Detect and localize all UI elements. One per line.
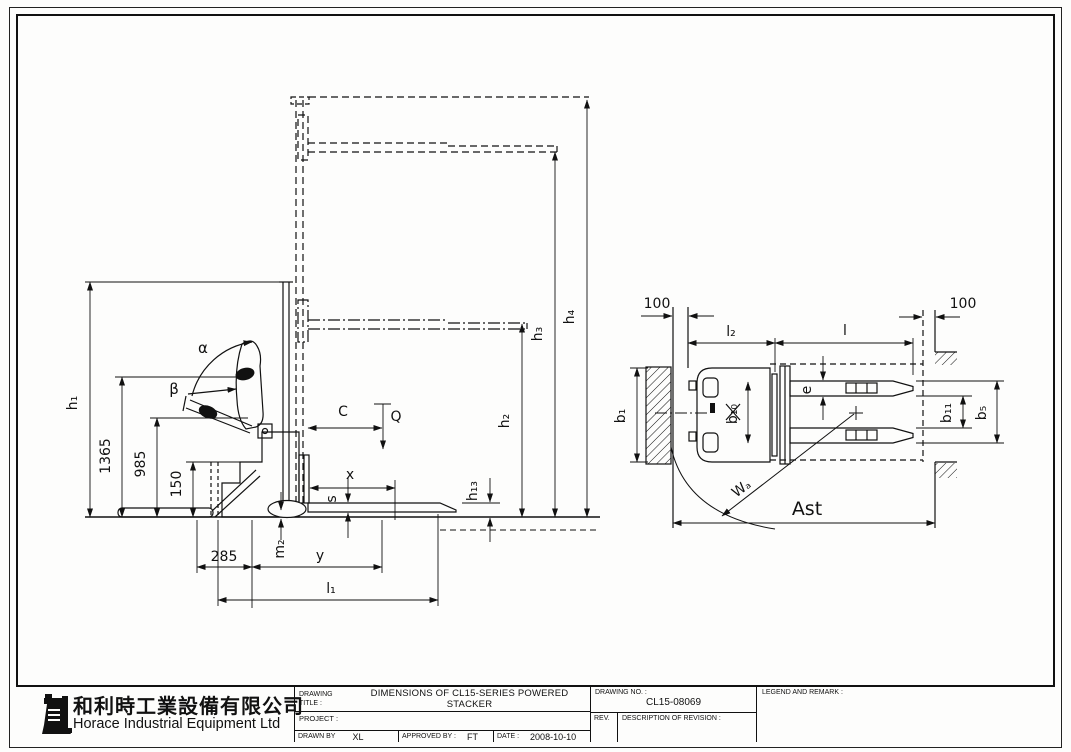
dim-label-alpha: α <box>198 339 208 357</box>
drawing-no-label: DRAWING NO. : <box>595 689 647 696</box>
fork-raised-high <box>298 115 557 160</box>
revision-description-label: DESCRIPTION OF REVISION : <box>618 713 756 742</box>
drawing-title-label-1: DRAWING <box>299 690 349 699</box>
dim-label-h1: h₁ <box>65 396 81 411</box>
engineering-drawing-sheet: h₁ 1365 985 150 α β C Q x s m₂ 285 y l₁ … <box>0 0 1071 752</box>
date-label: DATE : <box>494 733 522 740</box>
fork-lowered <box>299 455 456 512</box>
dim-label-c: C <box>338 404 348 420</box>
drawing-title-value: DIMENSIONS OF CL15-SERIES POWERED STACKE… <box>349 688 590 710</box>
drive-wheel-top <box>703 378 718 397</box>
dim-label-100-right: 100 <box>950 296 977 312</box>
dim-label-y: y <box>316 548 324 564</box>
drawing-title-label-2: TITLE : <box>299 699 349 708</box>
tiller-grip-up <box>235 366 255 381</box>
caster-wheel-top <box>703 433 718 452</box>
approved-by-label: APPROVED BY : <box>399 733 459 740</box>
dim-label-l1: l₁ <box>326 581 336 597</box>
dim-label-b1: b₁ <box>613 409 629 424</box>
turning-radius <box>671 406 863 529</box>
company-logo <box>42 694 72 736</box>
dim-label-b5: b₅ <box>974 406 990 421</box>
dim-label-b11: b₁₁ <box>939 403 955 423</box>
company-block: 和利時工業設備有限公司 Horace Industrial Equipment … <box>16 687 294 742</box>
dim-label-1365: 1365 <box>98 438 114 474</box>
beta-arrow <box>188 389 236 394</box>
dim-label-s: s <box>324 495 340 502</box>
dim-label-b10: b₁₀ <box>725 404 741 424</box>
dim-label-beta: β <box>169 380 179 398</box>
dim-label-ast: Ast <box>792 498 822 520</box>
dim-label-h3: h₃ <box>530 327 546 342</box>
fork-raised-mid <box>298 300 527 342</box>
tiller-upright <box>235 341 272 438</box>
dim-label-l2: l₂ <box>726 324 736 340</box>
company-name-en: Horace Industrial Equipment Ltd <box>73 716 280 732</box>
load-roller-bottom <box>846 430 877 440</box>
dim-label-150: 150 <box>169 471 185 498</box>
approved-by-value: FT <box>467 732 478 742</box>
dim-label-wa: Wₐ <box>729 477 754 501</box>
chassis-body <box>211 432 306 518</box>
project-label: PROJECT : <box>295 711 590 730</box>
technical-drawing: h₁ 1365 985 150 α β C Q x s m₂ 285 y l₁ … <box>0 0 1071 752</box>
rev-label: REV. <box>591 713 618 742</box>
tiller-lowered <box>183 396 252 433</box>
date-value: 2008-10-10 <box>530 732 576 742</box>
dim-label-985: 985 <box>133 451 149 478</box>
title-block-right: DRAWING NO. : CL15-08069 REV. DESCRIPTIO… <box>590 687 756 742</box>
title-block: 和利時工業設備有限公司 Horace Industrial Equipment … <box>16 685 1055 742</box>
side-view: h₁ 1365 985 150 α β C Q x s m₂ 285 y l₁ … <box>65 97 600 608</box>
title-block-middle: DRAWING TITLE : DIMENSIONS OF CL15-SERIE… <box>294 687 590 742</box>
company-name-cn: 和利時工業設備有限公司 <box>73 690 304 719</box>
top-view: 100 100 l₂ l e b₁ b₁₀ b₁₁ b₅ Wₐ Ast <box>613 296 1004 529</box>
load-roller-top <box>846 383 877 393</box>
mast-top <box>772 366 790 464</box>
drive-wheel <box>268 501 306 518</box>
drawing-no-value: CL15-08069 <box>591 697 756 708</box>
truck-body-top <box>655 368 770 462</box>
dim-label-100-left: 100 <box>644 296 671 312</box>
dim-label-h13: h₁₃ <box>465 481 481 501</box>
dim-label-285: 285 <box>211 549 238 565</box>
dim-label-l: l <box>843 323 847 339</box>
left-wall <box>646 367 671 464</box>
legend-remark-cell: LEGEND AND REMARK : <box>756 687 1055 742</box>
drawn-by-label: DRAWN BY <box>295 733 338 740</box>
dim-label-e: e <box>799 386 815 395</box>
dim-label-m2: m₂ <box>272 539 288 558</box>
drawn-by-value: XL <box>352 732 363 742</box>
side-view-dimensions <box>85 100 587 608</box>
dim-label-q: Q <box>390 409 401 425</box>
dim-label-h2: h₂ <box>497 414 513 429</box>
dim-label-x: x <box>346 467 354 483</box>
dim-label-h4: h₄ <box>562 309 578 324</box>
